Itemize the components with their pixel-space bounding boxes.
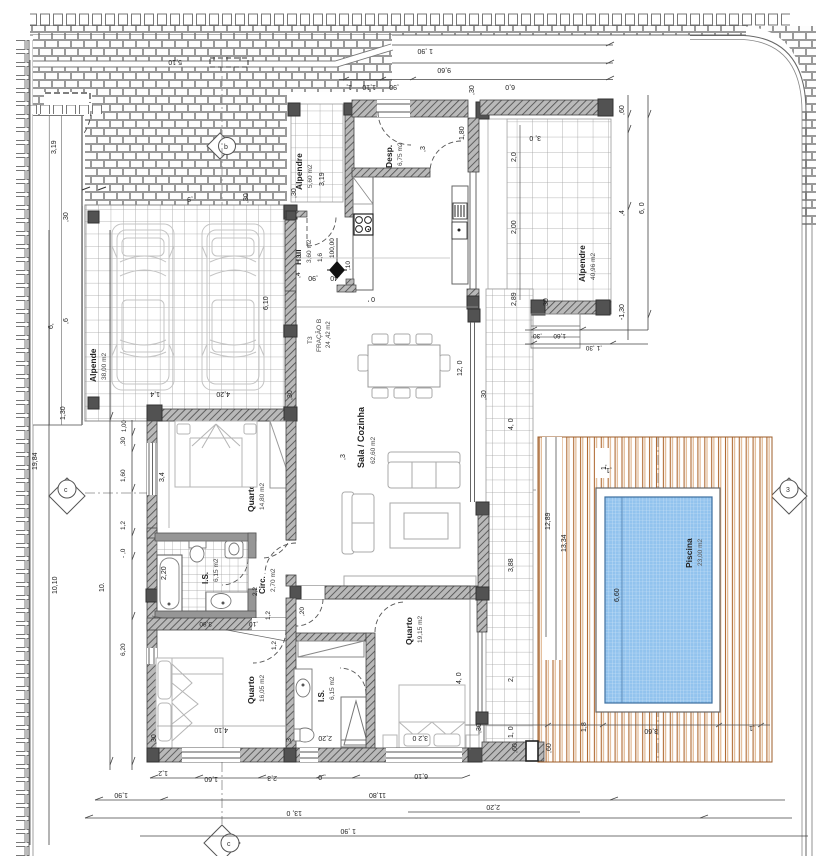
svg-text:c: c [227, 841, 231, 848]
svg-text:,30: ,30 [291, 188, 298, 198]
svg-text:2,: 2, [508, 676, 515, 682]
svg-text:6,20: 6,20 [120, 643, 127, 656]
svg-text:9,60: 9,60 [437, 66, 451, 73]
svg-text:6,15 m2: 6,15 m2 [213, 558, 220, 582]
svg-text:Alpende: Alpende [88, 348, 98, 382]
svg-text:6,0: 6,0 [505, 83, 515, 90]
svg-text:Alpendre: Alpendre [577, 245, 587, 282]
svg-text:3,80: 3,80 [199, 620, 212, 627]
svg-text:3,2 0: 3,2 0 [412, 734, 428, 741]
svg-text:3,60 m2: 3,60 m2 [306, 239, 313, 263]
svg-text:b: b [224, 144, 228, 151]
svg-text:,30: ,30 [287, 390, 294, 400]
svg-text:6, 0: 6, 0 [639, 202, 646, 214]
svg-text:1,8: 1,8 [581, 722, 588, 732]
svg-text:6,15 m2: 6,15 m2 [329, 676, 336, 700]
svg-text:,6: ,6 [63, 318, 70, 324]
svg-text:3, 0: 3, 0 [529, 134, 541, 141]
svg-text:38,00 m2: 38,00 m2 [101, 353, 108, 380]
svg-text:23,00 m2: 23,00 m2 [697, 539, 704, 566]
svg-text:1,10: 1,10 [362, 83, 376, 90]
svg-text:1 ,90: 1 ,90 [417, 47, 433, 54]
svg-text:,4: ,4 [619, 210, 626, 216]
svg-text:2,89: 2,89 [511, 292, 518, 306]
svg-text:3: 3 [786, 487, 790, 494]
svg-text:Desp.: Desp. [384, 145, 394, 168]
svg-text:1,80: 1,80 [459, 126, 466, 140]
svg-text:,30: ,30 [63, 212, 70, 222]
svg-text:19,15 m2: 19,15 m2 [417, 616, 424, 643]
svg-text:4,10: 4,10 [214, 726, 228, 733]
svg-text:5,10: 5,10 [168, 58, 182, 65]
svg-text:4,20: 4,20 [216, 390, 230, 397]
svg-text:Circ.: Circ. [258, 576, 267, 594]
svg-text:2,20: 2,20 [486, 803, 500, 810]
svg-text:12,89: 12,89 [545, 512, 552, 530]
svg-text:,1,: ,1, [604, 466, 612, 473]
svg-text:5,60 m2: 5,60 m2 [307, 164, 314, 188]
svg-text:11,80: 11,80 [369, 791, 386, 798]
svg-text:1,4: 1,4 [150, 390, 160, 397]
svg-text:,30: ,30 [469, 85, 476, 95]
svg-text:16,05 m2: 16,05 m2 [259, 675, 266, 702]
svg-text:,20: ,20 [299, 607, 306, 616]
svg-text:100,00: 100,00 [329, 238, 336, 258]
svg-text:,30: ,30 [120, 437, 127, 446]
svg-text:,10: ,10 [345, 261, 352, 270]
svg-text:4, 0: 4, 0 [456, 672, 463, 684]
svg-text:10,10: 10,10 [52, 576, 59, 594]
svg-text:I.S.: I.S. [317, 690, 326, 702]
svg-text:12, 0: 12, 0 [457, 360, 464, 376]
svg-text:2,0: 2,0 [511, 152, 518, 162]
svg-text:40,96 m2: 40,96 m2 [590, 253, 597, 280]
svg-text:1,6: 1,6 [317, 253, 324, 262]
svg-text:,3: ,3 [340, 454, 347, 460]
svg-text:13,34: 13,34 [561, 534, 568, 552]
svg-text:6,60: 6,60 [614, 588, 621, 602]
svg-text:0 ': 0 ' [368, 295, 375, 302]
svg-text:6,10: 6,10 [263, 296, 270, 310]
svg-text:2,70 m2: 2,70 m2 [270, 568, 277, 592]
svg-text:I.S.: I.S. [201, 572, 210, 584]
svg-text:1,2: 1,2 [271, 641, 278, 650]
svg-text:Quarto: Quarto [246, 484, 256, 512]
svg-text:c: c [64, 487, 68, 494]
svg-text:1,2: 1,2 [120, 521, 127, 530]
svg-text:,3: ,3 [286, 738, 293, 744]
svg-text:,90: ,90 [389, 83, 399, 90]
svg-text:,1: ,1 [749, 724, 755, 731]
svg-text:,90: ,90 [308, 274, 318, 281]
svg-text:FRAÇÃO B: FRAÇÃO B [314, 319, 323, 352]
svg-text:6,75 m2: 6,75 m2 [397, 142, 404, 166]
svg-text:,30: ,30 [481, 390, 488, 400]
svg-text:Piscina: Piscina [684, 538, 694, 568]
svg-text:1 ,90: 1 ,90 [340, 827, 356, 834]
svg-text:6,10: 6,10 [414, 772, 428, 779]
svg-text:1,60: 1,60 [120, 469, 127, 482]
svg-text:Alpendre: Alpendre [294, 153, 304, 190]
svg-text:3,60: 3,60 [644, 727, 658, 734]
svg-text:3,19: 3,19 [51, 140, 58, 154]
svg-text:14,80 m2: 14,80 m2 [259, 483, 266, 510]
svg-text:62,60 m2: 62,60 m2 [370, 437, 377, 464]
svg-text:,30: ,30 [543, 298, 550, 308]
svg-text:1,2: 1,2 [265, 611, 272, 620]
svg-text:2,3: 2,3 [267, 774, 277, 781]
svg-text:1,90: 1,90 [114, 791, 128, 798]
svg-text:1,: 1, [346, 83, 352, 90]
svg-text:2,2: 2,2 [252, 587, 259, 596]
svg-text:T3: T3 [307, 336, 314, 344]
svg-text:,60: ,60 [546, 743, 553, 753]
svg-text:13, 0: 13, 0 [286, 809, 302, 816]
svg-text:4, 0: 4, 0 [508, 418, 515, 430]
svg-text:1,30: 1,30 [60, 406, 67, 420]
svg-text:,30: ,30 [533, 332, 542, 339]
svg-text:,30: ,30 [151, 734, 158, 744]
svg-text:24 ,42 m2: 24 ,42 m2 [326, 321, 332, 348]
svg-text:3,19: 3,19 [319, 172, 326, 186]
svg-text:,10: ,10 [249, 620, 258, 627]
svg-text:,30: ,30 [476, 723, 483, 733]
svg-text:1, 0: 1, 0 [508, 726, 515, 738]
svg-text:2,00: 2,00 [511, 220, 518, 234]
svg-text:,60: ,60 [619, 105, 626, 115]
svg-text:1,2: 1,2 [158, 769, 168, 776]
svg-text:-1,30: -1,30 [619, 304, 626, 320]
svg-text:2,20: 2,20 [318, 734, 332, 741]
svg-text:10.: 10. [99, 582, 106, 592]
svg-text:19,84: 19,84 [32, 452, 39, 470]
svg-text:,3: ,3 [420, 146, 427, 152]
svg-text:3,88: 3,88 [508, 558, 515, 572]
svg-text:1,60: 1,60 [204, 775, 218, 782]
svg-text:,60: ,60 [512, 743, 519, 753]
svg-text:Quarto: Quarto [404, 617, 414, 645]
svg-text:1,00: 1,00 [122, 420, 128, 432]
svg-text:2,20: 2,20 [161, 566, 168, 580]
svg-text:- ,0: - ,0 [120, 548, 127, 558]
svg-text:,9: ,9 [187, 195, 193, 202]
svg-text:,30: ,30 [243, 193, 250, 203]
svg-text:Sala / Cozinha: Sala / Cozinha [356, 406, 366, 468]
svg-text:,1 ,30: ,1 ,30 [585, 344, 602, 351]
svg-text:3,4: 3,4 [159, 472, 166, 482]
svg-text:Quarto: Quarto [246, 676, 256, 704]
svg-text:1,60: 1,60 [553, 332, 566, 339]
